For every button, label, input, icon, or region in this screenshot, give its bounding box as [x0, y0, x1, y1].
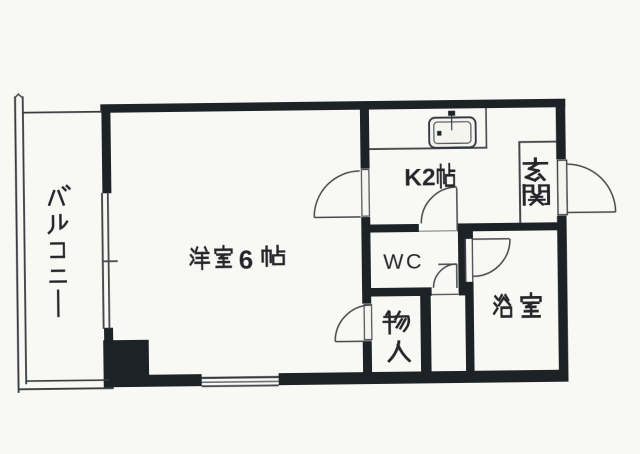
- svg-text:6: 6: [239, 244, 254, 274]
- svg-text:K2: K2: [404, 164, 436, 191]
- svg-text:WC: WC: [383, 249, 424, 273]
